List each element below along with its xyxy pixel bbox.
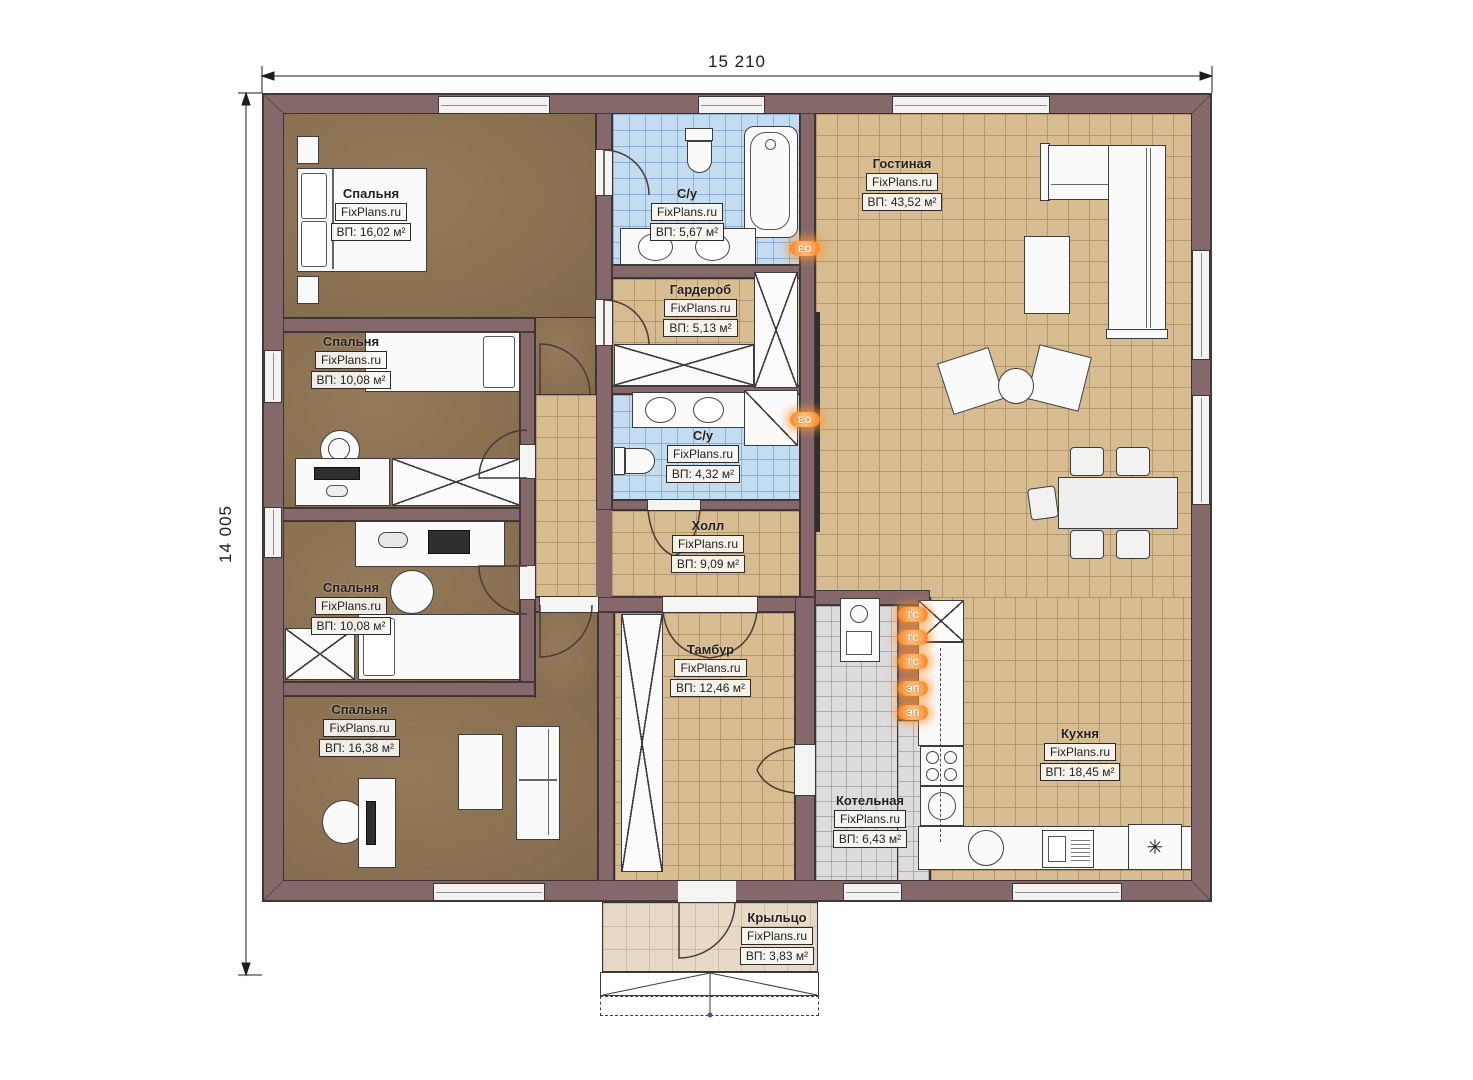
- room-label-bedroom-3: Спальня FixPlans.ru ВП: 10,08 м²: [296, 580, 406, 635]
- window: [433, 883, 545, 901]
- corner-sofa-vertical: [1108, 145, 1166, 331]
- vanity-double-sink: [632, 392, 746, 428]
- dishwasher-door: [1048, 836, 1066, 862]
- wall: [612, 500, 648, 510]
- entrance-door-opening: [678, 881, 736, 902]
- watermark: FixPlans.ru: [664, 299, 736, 317]
- heat-supply-icon: ТС: [898, 654, 928, 669]
- dining-chair: [1116, 530, 1150, 559]
- room-label-bedroom-1: Спальня FixPlans.ru ВП: 16,02 м²: [310, 186, 432, 241]
- room-area: ВП: 10,08 м²: [311, 371, 392, 389]
- room-label-wardrobe: Гардероб FixPlans.ru ВП: 5,13 м²: [638, 282, 763, 337]
- drain: [765, 139, 776, 150]
- door-opening: [596, 300, 612, 345]
- room-area: ВП: 4,32 м²: [666, 465, 740, 483]
- watermark: FixPlans.ru: [866, 173, 938, 191]
- room-bedroom-4-extension-floor: [535, 612, 598, 698]
- monitor: [366, 801, 376, 845]
- floor-plan-canvas: ✳: [0, 0, 1473, 1080]
- sofa-seat-line: [548, 729, 550, 835]
- fridge: ✳: [1128, 824, 1182, 870]
- wall: [596, 195, 612, 300]
- room-bedroom-1-extension-floor: [535, 318, 596, 396]
- dining-chair: [1027, 485, 1059, 521]
- room-area: ВП: 16,02 м²: [331, 223, 412, 241]
- sink: [693, 397, 724, 423]
- room-label-boiler: Котельная FixPlans.ru ВП: 6,43 м²: [815, 793, 925, 848]
- sofa-seat-line: [1150, 148, 1152, 328]
- room-label-kitchen: Кухня FixPlans.ru ВП: 18,45 м²: [1015, 726, 1145, 781]
- dining-table: [1058, 477, 1178, 529]
- room-area: ВП: 5,67 м²: [650, 223, 724, 241]
- wall: [520, 478, 535, 566]
- watermark: FixPlans.ru: [315, 597, 387, 615]
- watermark: FixPlans.ru: [1044, 743, 1116, 761]
- wall: [283, 682, 535, 696]
- sofa: [516, 726, 560, 840]
- desk: [355, 521, 505, 567]
- room-name: С/у: [677, 186, 697, 201]
- heat-supply-icon: ТС: [898, 607, 928, 622]
- wall: [598, 597, 663, 612]
- desk-lamp: [378, 532, 408, 548]
- dimension-width-label: 15 210: [687, 52, 787, 72]
- room-area: ВП: 10,08 м²: [311, 617, 392, 635]
- room-name: Спальня: [323, 580, 379, 595]
- wall: [283, 318, 535, 332]
- room-name: Гардероб: [670, 282, 731, 297]
- sink: [928, 792, 956, 820]
- room-area: ВП: 5,13 м²: [663, 319, 737, 337]
- window: [264, 507, 282, 558]
- room-name: Кухня: [1061, 726, 1099, 741]
- wall: [596, 113, 612, 150]
- wardrobe-cabinet: [285, 628, 355, 680]
- nightstand: [297, 136, 319, 164]
- watermark: FixPlans.ru: [323, 719, 395, 737]
- room-name: Холл: [692, 518, 725, 533]
- toilet-tank: [685, 128, 713, 141]
- room-label-porch: Крыльцо FixPlans.ru ВП: 3,83 м²: [722, 910, 832, 965]
- room-label-bathroom-2: С/у FixPlans.ru ВП: 4,32 м²: [648, 428, 758, 483]
- wardrobe-cabinet: [614, 344, 754, 386]
- wall: [795, 597, 815, 745]
- room-area: ВП: 9,09 м²: [671, 555, 745, 573]
- porch-step: [600, 996, 819, 1016]
- room-label-tambour: Тамбур FixPlans.ru ВП: 12,46 м²: [648, 642, 773, 697]
- window: [698, 96, 765, 114]
- window: [1192, 250, 1210, 360]
- fridge-snowflake-icon: ✳: [1147, 835, 1164, 860]
- coffee-table: [458, 734, 503, 810]
- sink: [968, 830, 1004, 866]
- room-label-living: Гостиная FixPlans.ru ВП: 43,52 м²: [842, 156, 962, 211]
- watermark: FixPlans.ru: [335, 203, 407, 221]
- side-table: [998, 368, 1034, 404]
- dining-chair: [1116, 447, 1150, 476]
- burner: [926, 768, 939, 781]
- sofa-cushion-line: [519, 779, 557, 781]
- laptop: [428, 530, 470, 554]
- wall: [283, 508, 520, 521]
- heat-supply-icon: ТС: [898, 630, 928, 645]
- nightstand: [297, 276, 319, 304]
- room-area: ВП: 16,38 м²: [319, 739, 400, 757]
- room-name: Крыльцо: [747, 910, 806, 925]
- dishwasher: [1042, 830, 1094, 868]
- sink: [645, 397, 676, 423]
- dining-chair: [1070, 530, 1104, 559]
- wall: [800, 113, 815, 597]
- watermark: FixPlans.ru: [741, 927, 813, 945]
- door-opening: [596, 150, 612, 195]
- room-area: ВП: 12,46 м²: [670, 679, 751, 697]
- window: [264, 350, 282, 403]
- door-opening: [520, 445, 535, 478]
- toilet: [687, 141, 712, 173]
- dining-chair: [1070, 447, 1104, 476]
- door-opening: [520, 566, 535, 599]
- dimension-height-label: 14 005: [216, 484, 236, 584]
- watermark: FixPlans.ru: [651, 203, 723, 221]
- porch-step: [600, 972, 819, 996]
- keyboard: [326, 485, 348, 497]
- door-opening: [663, 597, 757, 612]
- wall: [700, 500, 800, 510]
- electric-panel-icon: ЭП: [898, 681, 928, 696]
- burner: [944, 751, 957, 764]
- sofa-armrest: [1106, 329, 1168, 339]
- boiler-door: [846, 631, 872, 655]
- desk: [295, 458, 390, 506]
- room-area: ВП: 6,43 м²: [833, 830, 907, 848]
- room-area: ВП: 18,45 м²: [1040, 763, 1121, 781]
- room-area: ВП: 3,83 м²: [740, 947, 814, 965]
- corridor-floor: [535, 394, 596, 597]
- watermark: FixPlans.ru: [674, 659, 746, 677]
- window: [1192, 395, 1210, 505]
- watermark: FixPlans.ru: [672, 535, 744, 553]
- room-name: Спальня: [331, 702, 387, 717]
- pillow: [483, 336, 515, 388]
- boiler-unit: [840, 598, 880, 662]
- room-area: ВП: 43,52 м²: [862, 193, 943, 211]
- sofa-seat-line: [1146, 148, 1148, 328]
- burner: [944, 768, 957, 781]
- door-opening: [795, 745, 815, 795]
- room-name: Тамбур: [687, 642, 734, 657]
- room-label-bedroom-2: Спальня FixPlans.ru ВП: 10,08 м²: [296, 334, 406, 389]
- room-name: Спальня: [323, 334, 379, 349]
- burner: [926, 751, 939, 764]
- door-opening: [540, 597, 598, 612]
- room-name: Гостиная: [873, 156, 932, 171]
- monitor: [314, 467, 360, 480]
- window: [1012, 883, 1122, 901]
- wall: [795, 795, 815, 881]
- towel-dryer-icon: ЕО: [790, 412, 820, 427]
- room-name: Спальня: [343, 186, 399, 201]
- wall: [520, 599, 535, 682]
- counter-centerline: [940, 648, 941, 842]
- plant-inner: [328, 438, 350, 460]
- room-label-hall: Холл FixPlans.ru ВП: 9,09 м²: [653, 518, 763, 573]
- dishwasher-grill: [1071, 837, 1090, 861]
- wall: [520, 332, 535, 445]
- towel-dryer-icon: ЕО: [790, 241, 820, 256]
- room-label-bedroom-4: Спальня FixPlans.ru ВП: 16,38 м²: [302, 702, 417, 757]
- toilet-tank: [614, 447, 625, 475]
- bathtub: [744, 126, 798, 238]
- watermark: FixPlans.ru: [834, 810, 906, 828]
- wall: [598, 612, 614, 881]
- room-label-bathroom-1: С/у FixPlans.ru ВП: 5,67 м²: [632, 186, 742, 241]
- wall: [596, 345, 612, 510]
- kitchen-sink-cabinet: [920, 786, 964, 826]
- window: [438, 96, 550, 114]
- coffee-table: [1024, 236, 1070, 314]
- room-name: Котельная: [836, 793, 904, 808]
- boiler-dial: [850, 605, 868, 623]
- wardrobe-cabinet: [392, 458, 520, 506]
- electric-panel-icon: ЭП: [898, 705, 928, 720]
- stove: [920, 746, 964, 786]
- door-opening: [648, 500, 700, 510]
- window: [843, 883, 902, 901]
- window: [892, 96, 1050, 114]
- watermark: FixPlans.ru: [315, 351, 387, 369]
- watermark: FixPlans.ru: [667, 445, 739, 463]
- room-name: С/у: [693, 428, 713, 443]
- desk: [358, 778, 396, 868]
